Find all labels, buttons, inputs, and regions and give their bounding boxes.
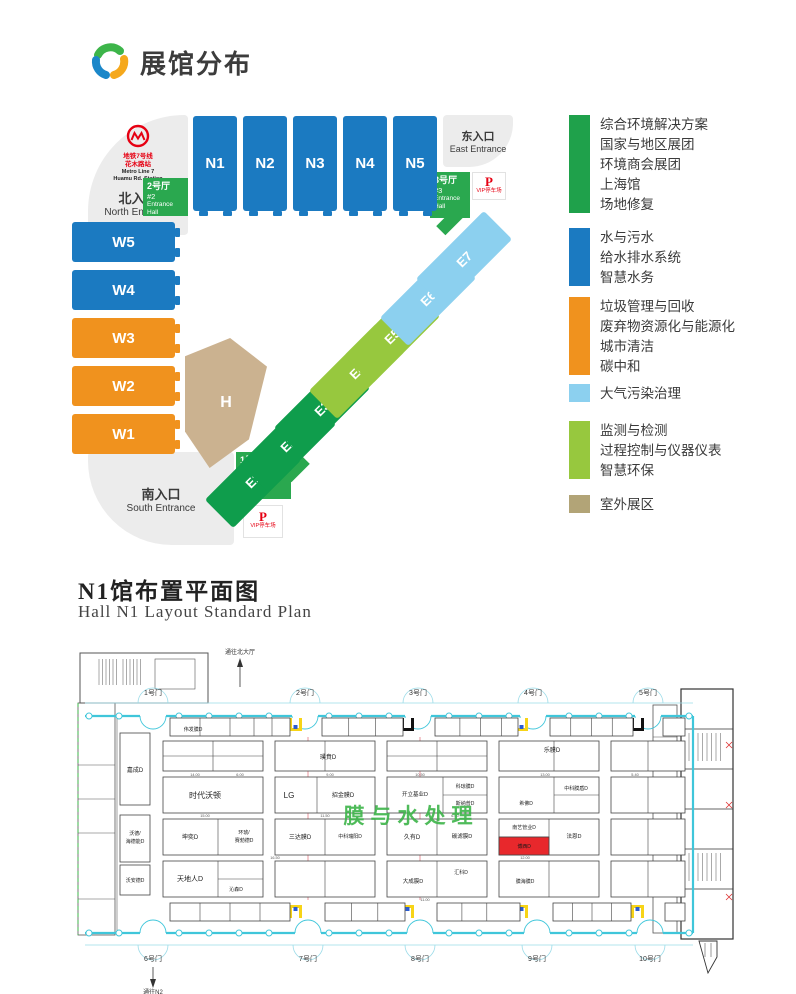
booth-label: 沁森D: [229, 886, 243, 893]
column-circle: [686, 930, 692, 936]
column-circle: [116, 930, 122, 936]
booth-cell: [322, 718, 403, 736]
legend-items: 综合环境解决方案国家与地区展团环境商会展团上海馆场地修复: [600, 115, 708, 215]
booth-label: 大成膜D: [403, 877, 424, 885]
legend-item: 监测与检测: [600, 421, 722, 441]
column-circle: [476, 930, 482, 936]
booth-cell: [435, 718, 518, 736]
north-entrance-area: 地铁7号线 花木路站 Metro Line 7 Huamu Rd. Statio…: [88, 115, 188, 235]
booth-label: 坤奕D: [182, 833, 199, 841]
door-swing: [140, 920, 153, 933]
hall-label: H: [220, 394, 232, 412]
column-circle: [86, 713, 92, 719]
hall-notch: [373, 211, 382, 216]
hall-notch: [175, 276, 180, 285]
booth-cell: [663, 718, 685, 736]
door-swing: [537, 920, 550, 933]
to-north-note: 通往北大厅: [225, 648, 255, 656]
door-swing: [407, 920, 420, 933]
legend-items: 监测与检测过程控制与仪器仪表智慧环保: [600, 421, 722, 481]
lobby-room: [155, 659, 195, 689]
booth-cell: [325, 903, 405, 921]
arrow-icon: [150, 979, 156, 988]
metro-station-cn: 花木路站: [88, 161, 188, 169]
hall-notch: [423, 211, 432, 216]
hall-label: W1: [112, 426, 135, 443]
hall-N2: N2: [243, 116, 287, 211]
column-circle: [176, 930, 182, 936]
booth-label: 沃安德D: [126, 877, 145, 884]
legend-item: 场地修复: [600, 195, 708, 215]
hall-notch: [399, 211, 408, 216]
column-circle: [86, 930, 92, 936]
booth-label: 璞賁D: [320, 753, 337, 761]
legend-item: 垃圾管理与回收: [600, 297, 735, 317]
gate-label: 1号门: [144, 688, 162, 697]
booth-label: 天地人D: [177, 874, 203, 883]
hall-label: W5: [112, 234, 135, 251]
gate-label: 6号门: [144, 954, 162, 963]
dimension-text: 14.00: [190, 773, 200, 777]
booth-label: 汇科D: [454, 869, 468, 876]
gate-label: 7号门: [299, 954, 317, 963]
door-swing: [153, 716, 166, 729]
hall-notch: [175, 296, 180, 305]
hall-notch: [175, 344, 180, 353]
column-circle: [116, 713, 122, 719]
legend-item: 上海馆: [600, 175, 708, 195]
booth-label: 中科瑞阳D: [338, 833, 362, 840]
hall-notch: [249, 211, 258, 216]
hydrant-dot: [294, 725, 298, 729]
booth-cell: [665, 903, 685, 921]
legend-items: 垃圾管理与回收废弃物资源化与能源化城市清洁碳中和: [600, 297, 735, 377]
column-circle: [566, 930, 572, 936]
metro-line-en: Metro Line 7: [88, 169, 188, 176]
door-frame-inner: [634, 718, 641, 728]
hydrant-dot: [406, 907, 410, 911]
legend-item: 给水排水系统: [600, 248, 681, 268]
legend-group: 室外展区: [569, 495, 654, 515]
page-header: 展馆分布: [90, 42, 252, 82]
hall-label: N2: [255, 155, 274, 172]
hydrant-dot: [636, 907, 640, 911]
door-swing: [650, 920, 663, 933]
hall-label: W4: [112, 282, 135, 299]
column-circle: [266, 930, 272, 936]
hall-W4: W4: [72, 270, 175, 310]
hall-label: E7: [453, 248, 475, 270]
legend-item: 综合环境解决方案: [600, 115, 708, 135]
booth-label: 嘉成D: [127, 766, 144, 774]
legend-item: 城市清洁: [600, 337, 735, 357]
column-circle: [236, 930, 242, 936]
gate-label: 5号门: [639, 688, 657, 697]
east-entrance-area: 东入口 East Entrance: [443, 115, 513, 167]
legend-item: 大气污染治理: [600, 384, 681, 404]
legend-group: 垃圾管理与回收废弃物资源化与能源化城市清洁碳中和: [569, 297, 735, 377]
section-marker: [699, 941, 717, 973]
metro-line-cn: 地铁7号线: [88, 153, 188, 161]
booth-label: 沃德/: [129, 830, 141, 837]
door-swing: [153, 920, 166, 933]
arrow-icon: [237, 658, 243, 667]
west-annex: [78, 703, 115, 935]
hall-notch: [323, 211, 332, 216]
door-swing: [648, 716, 661, 729]
booth-label: 海德能D: [126, 838, 145, 845]
hall-W5: W5: [72, 222, 175, 262]
hall-notch: [175, 324, 180, 333]
hall-label: N4: [355, 155, 374, 172]
dimension-text: 16.50: [270, 856, 280, 860]
door-swing: [308, 920, 321, 933]
dimension-text: 11.00: [420, 898, 429, 902]
hall-label: N1: [205, 155, 224, 172]
metro-logo-icon: [126, 124, 150, 148]
booth-label: 中科膜盾D: [564, 785, 588, 792]
east-entrance-label-cn: 东入口: [443, 128, 513, 144]
to-n2-note: 通往N2: [143, 988, 163, 994]
hall-W3: W3: [72, 318, 175, 358]
legend-items: 室外展区: [600, 495, 654, 515]
legend-item: 水与污水: [600, 228, 681, 248]
gate-label: 10号门: [639, 954, 661, 963]
booth-cell: [499, 741, 599, 771]
east-annex: [681, 689, 733, 939]
booth-label: 南艺管业D: [512, 824, 536, 831]
legend-item: 智慧水务: [600, 268, 681, 288]
legend-swatch: [569, 297, 590, 375]
section-title-en: Hall N1 Layout Standard Plan: [78, 602, 312, 622]
hall-notch: [175, 228, 180, 237]
booth-label: 希佛D: [519, 800, 533, 807]
booth-label: 环琥/: [238, 829, 250, 836]
hydrant-dot: [294, 907, 298, 911]
gate-label: 3号门: [409, 688, 427, 697]
column-circle: [626, 930, 632, 936]
booth-label: 三达膜D: [289, 833, 312, 841]
door-swing: [418, 716, 431, 729]
hall-notch: [299, 211, 308, 216]
hall-label: W2: [112, 378, 135, 395]
hall-notch: [199, 211, 208, 216]
legend-item: 智慧环保: [600, 461, 722, 481]
hall-notch: [175, 248, 180, 257]
booth-label: LG: [284, 791, 295, 800]
legend-item: 碳中和: [600, 357, 735, 377]
legend-items: 水与污水给水排水系统智慧水务: [600, 228, 681, 288]
hall-N4: N4: [343, 116, 387, 211]
hall-notch: [175, 440, 180, 449]
gate-label: 8号门: [411, 954, 429, 963]
booth-cell: [437, 903, 520, 921]
column-circle: [686, 713, 692, 719]
hydrant-dot: [520, 725, 524, 729]
watermark-text: 膜与水处理: [344, 804, 479, 828]
booth-label: 赛勃德D: [235, 837, 254, 844]
legend-item: 环境商会展团: [600, 155, 708, 175]
expo-logo-icon: [90, 42, 130, 82]
column-circle: [206, 930, 212, 936]
hall-notch: [175, 372, 180, 381]
page: 展馆分布 地铁7号线 花木路站 Metro Line 7 Huamu Rd. S…: [0, 0, 796, 994]
gate-label: 4号门: [524, 688, 542, 697]
dimension-text: 11.50: [320, 814, 329, 818]
dimension-text: 12.00: [520, 856, 530, 860]
legend-item: 过程控制与仪器仪表: [600, 441, 722, 461]
hall-notch: [175, 392, 180, 401]
legend-swatch: [569, 115, 590, 213]
legend-item: 废弃物资源化与能源化: [600, 317, 735, 337]
hall-label: W3: [112, 330, 135, 347]
hall-W1: W1: [72, 414, 175, 454]
section-title-cn: N1馆布置平面图: [78, 572, 260, 606]
dimension-text: 6.00: [236, 773, 243, 777]
column-circle: [596, 930, 602, 936]
hall-notch: [273, 211, 282, 216]
legend-item: 室外展区: [600, 495, 654, 515]
dimension-text: 15.00: [200, 814, 210, 818]
hall-notch: [175, 420, 180, 429]
booth-label: 膜海膜D: [516, 878, 535, 885]
hall-label: N3: [305, 155, 324, 172]
booth-label: 乐膜D: [544, 746, 561, 754]
legend-group: 水与污水给水排水系统智慧水务: [569, 228, 681, 288]
parking-icon: P: [473, 175, 505, 188]
gate-label: 9号门: [528, 954, 546, 963]
gate-label: 2号门: [296, 688, 314, 697]
column-circle: [446, 930, 452, 936]
booth-label: 时代沃顿: [189, 790, 221, 800]
page-title: 展馆分布: [140, 44, 252, 81]
floor-plan: 伟发膜D嘉成D沃德/海德能D沃安德D璞賁D乐膜D时代沃顿LG招金膜D开立基业D科…: [75, 645, 740, 994]
legend-item: 国家与地区展团: [600, 135, 708, 155]
parking-icon: P: [244, 510, 282, 523]
door-swing: [295, 920, 308, 933]
door-frame-inner: [404, 718, 411, 728]
hall-N5: N5: [393, 116, 437, 211]
booth-label: 法恩D: [567, 832, 582, 840]
legend-group: 大气污染治理: [569, 384, 681, 404]
hall-E7: E7: [416, 211, 512, 307]
legend-group: 监测与检测过程控制与仪器仪表智慧环保: [569, 421, 722, 481]
hall-N1: N1: [193, 116, 237, 211]
entrance-hall-2: 2号厅 #2 Entrance Hall: [143, 178, 188, 216]
booth-label: 伟发膜D: [184, 726, 203, 733]
dimension-text: 10.50: [415, 773, 425, 777]
hall-label: N5: [405, 155, 424, 172]
legend-items: 大气污染治理: [600, 384, 681, 404]
column-circle: [506, 930, 512, 936]
door-swing: [637, 920, 650, 933]
column-circle: [356, 930, 362, 936]
booth-label: 久有D: [404, 833, 421, 841]
column-circle: [326, 930, 332, 936]
door-swing: [305, 716, 318, 729]
hall-W2: W2: [72, 366, 175, 406]
door-swing: [140, 716, 153, 729]
legend-swatch: [569, 495, 590, 513]
dimension-text: 13.00: [540, 773, 550, 777]
dimension-text: 5.40: [631, 773, 638, 777]
door-swing: [533, 716, 546, 729]
hall-N3: N3: [293, 116, 337, 211]
dimension-text: 9.00: [326, 773, 333, 777]
door-swing: [524, 920, 537, 933]
booth-label: 开立基业D: [402, 790, 428, 798]
booth-label: 博西D: [517, 843, 531, 850]
legend-swatch: [569, 384, 590, 402]
legend-swatch: [569, 421, 590, 479]
door-swing: [420, 920, 433, 933]
vip-parking-east: P VIP停车场: [472, 172, 506, 200]
hall-notch: [349, 211, 358, 216]
legend-group: 综合环境解决方案国家与地区展团环境商会展团上海馆场地修复: [569, 115, 708, 215]
east-entrance-label-en: East Entrance: [443, 144, 513, 154]
legend-swatch: [569, 228, 590, 286]
hall-notch: [223, 211, 232, 216]
booth-cell: [163, 819, 263, 855]
booth-label: 科琼膜D: [456, 783, 475, 790]
column-circle: [386, 930, 392, 936]
booth-label: 碳滤膜D: [452, 832, 473, 840]
booth-label: 招金膜D: [332, 791, 355, 799]
